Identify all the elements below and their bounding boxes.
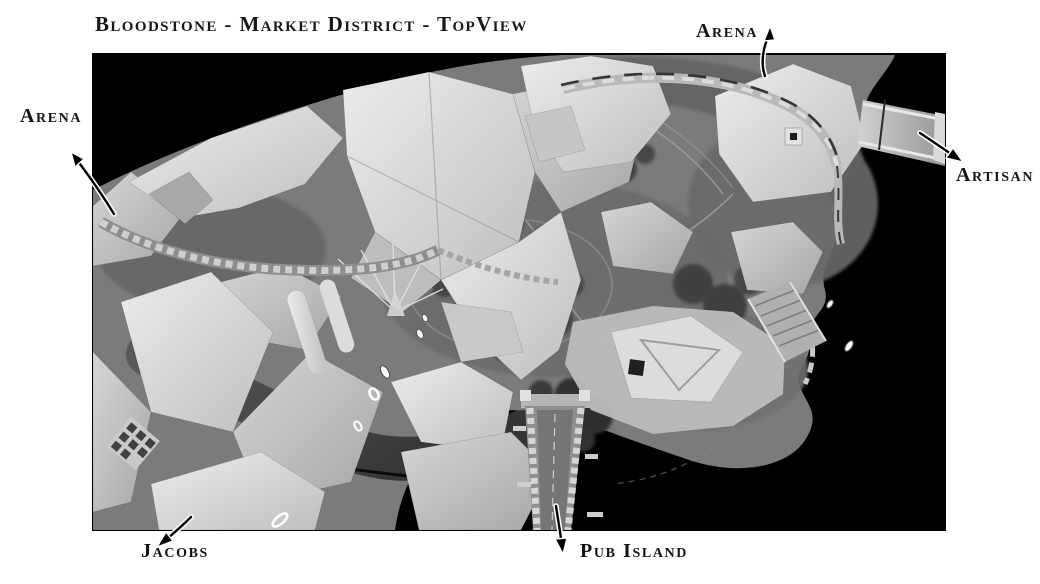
label-arena-top: Arena <box>696 20 758 43</box>
label-jacobs: Jacobs <box>141 540 209 563</box>
map-svg <box>93 54 945 530</box>
label-pub-island: Pub Island <box>580 540 688 563</box>
map-render <box>93 54 945 530</box>
label-arena-left: Arena <box>20 105 82 128</box>
page-title: Bloodstone - Market District - TopView <box>95 12 528 37</box>
label-artisan: Artisan <box>956 164 1034 187</box>
